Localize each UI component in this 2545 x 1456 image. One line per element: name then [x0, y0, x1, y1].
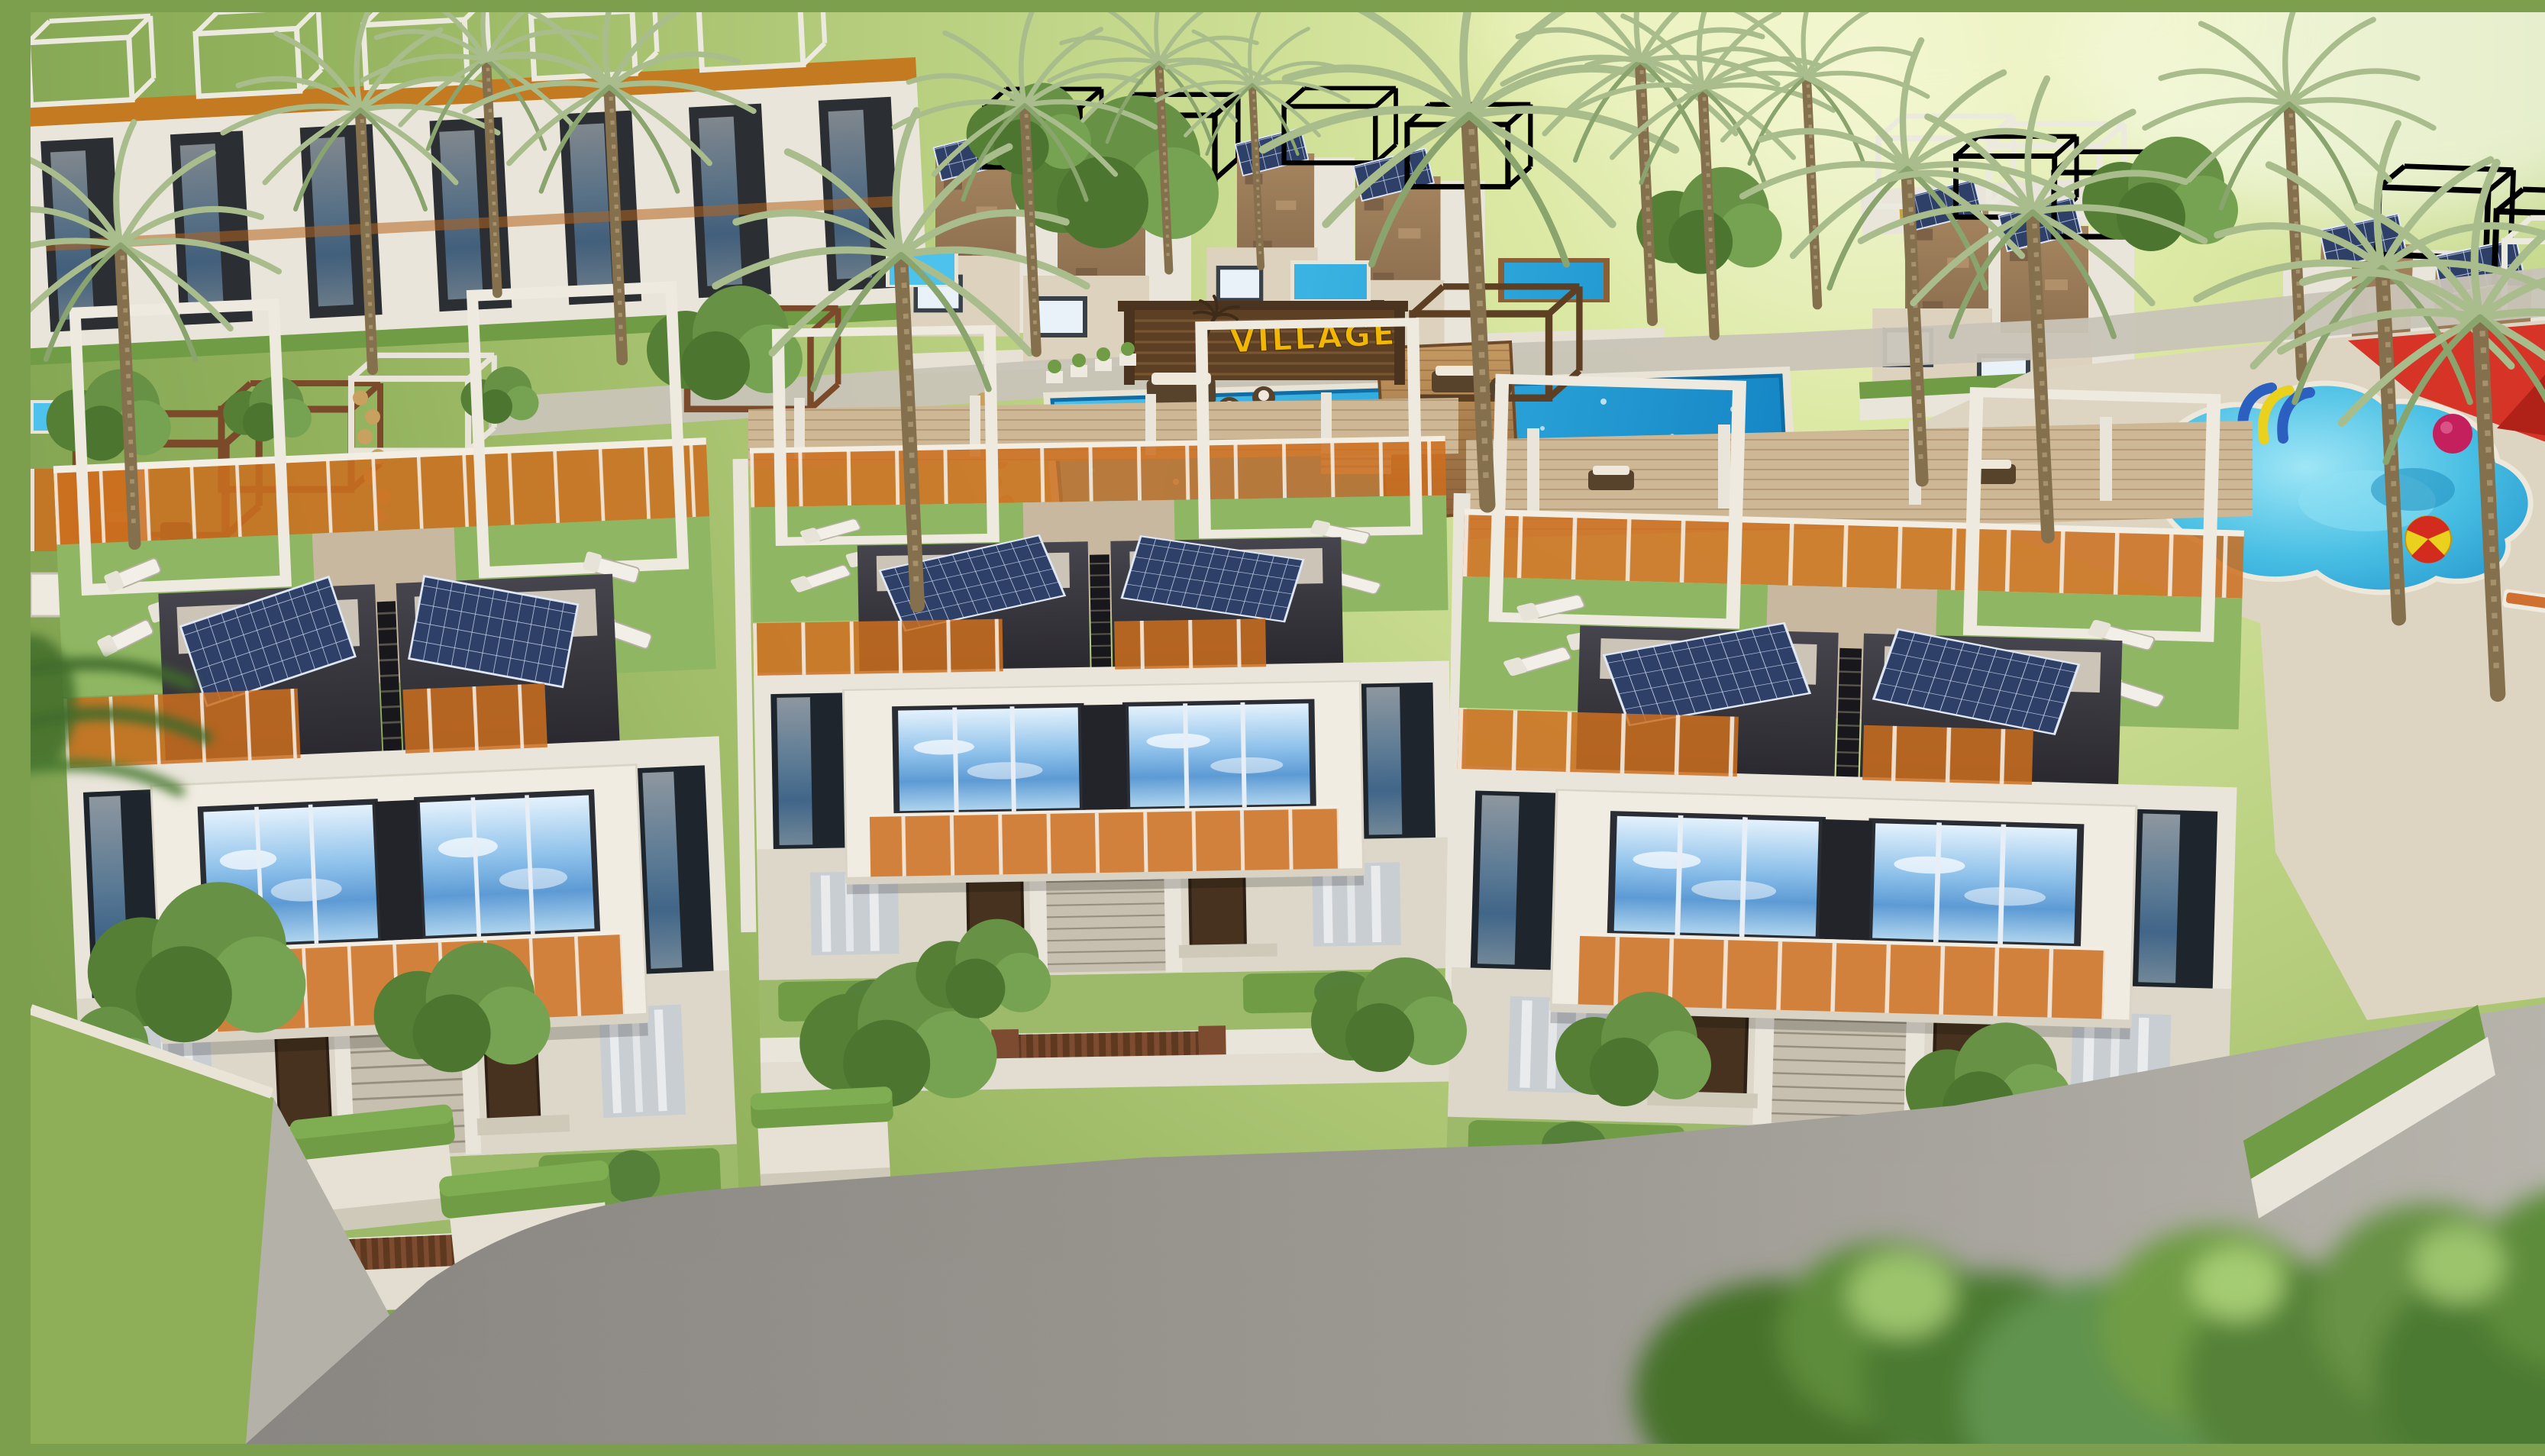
beach-umbrella: [2405, 516, 2451, 563]
render-image: VILLAGE: [31, 12, 2545, 1444]
pool-ball: [2433, 414, 2472, 454]
